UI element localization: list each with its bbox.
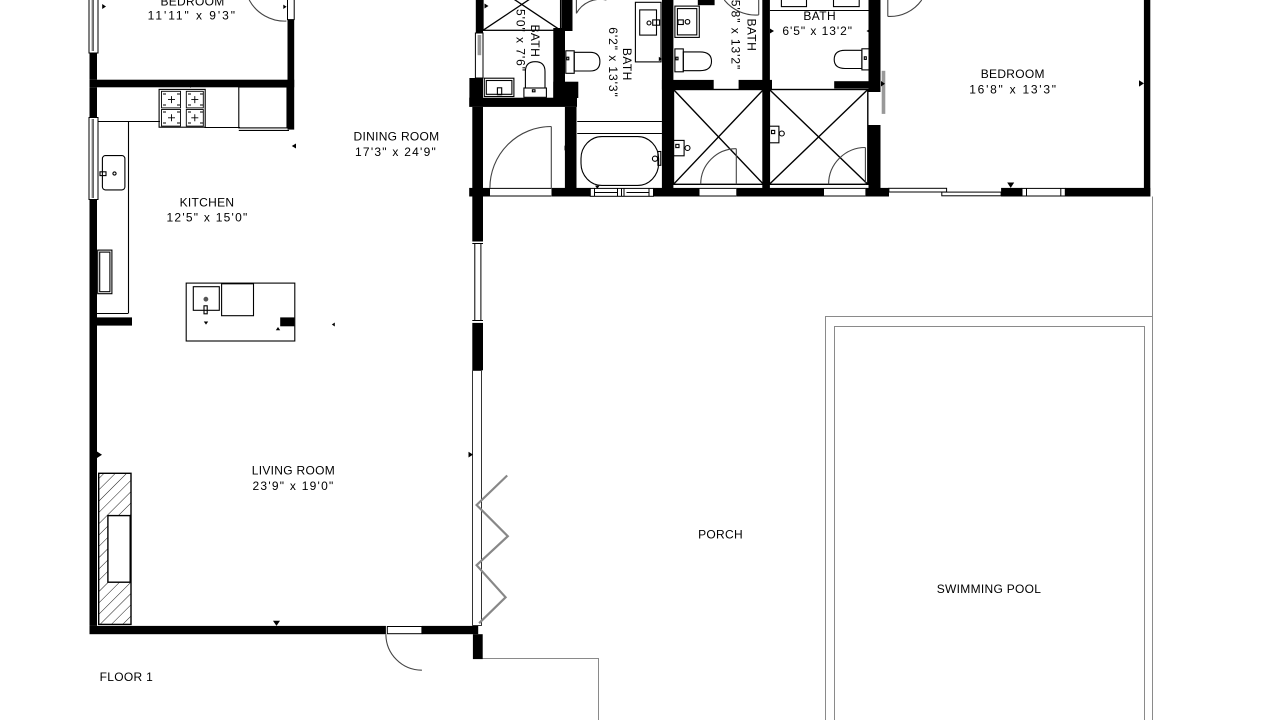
svg-text:SWIMMING POOL: SWIMMING POOL <box>937 582 1042 596</box>
svg-text:6'2" x 13'3": 6'2" x 13'3" <box>606 27 620 98</box>
svg-text:FLOOR 1: FLOOR 1 <box>100 670 153 684</box>
svg-text:5'8" x 13'2": 5'8" x 13'2" <box>729 0 743 70</box>
svg-text:PORCH: PORCH <box>698 527 743 541</box>
svg-text:BEDROOM: BEDROOM <box>981 67 1045 81</box>
svg-text:17'3" x 24'9": 17'3" x 24'9" <box>355 145 437 159</box>
svg-text:BATH: BATH <box>744 18 758 51</box>
svg-text:12'5" x 15'0": 12'5" x 15'0" <box>166 211 248 225</box>
svg-text:DINING ROOM: DINING ROOM <box>354 130 440 144</box>
svg-text:16'8" x 13'3": 16'8" x 13'3" <box>969 83 1058 97</box>
svg-text:BATH: BATH <box>803 9 836 23</box>
svg-text:6'5" x 13'2": 6'5" x 13'2" <box>782 24 853 38</box>
svg-text:BATH: BATH <box>528 24 542 57</box>
svg-text:11'11" x 9'3": 11'11" x 9'3" <box>148 9 237 23</box>
svg-text:LIVING ROOM: LIVING ROOM <box>252 463 335 477</box>
svg-text:BATH: BATH <box>620 48 634 81</box>
svg-text:BEDROOM: BEDROOM <box>160 0 224 9</box>
svg-text:5'0" x 7'6": 5'0" x 7'6" <box>513 9 527 72</box>
svg-text:23'9" x 19'0": 23'9" x 19'0" <box>252 479 334 493</box>
svg-text:KITCHEN: KITCHEN <box>180 195 235 209</box>
